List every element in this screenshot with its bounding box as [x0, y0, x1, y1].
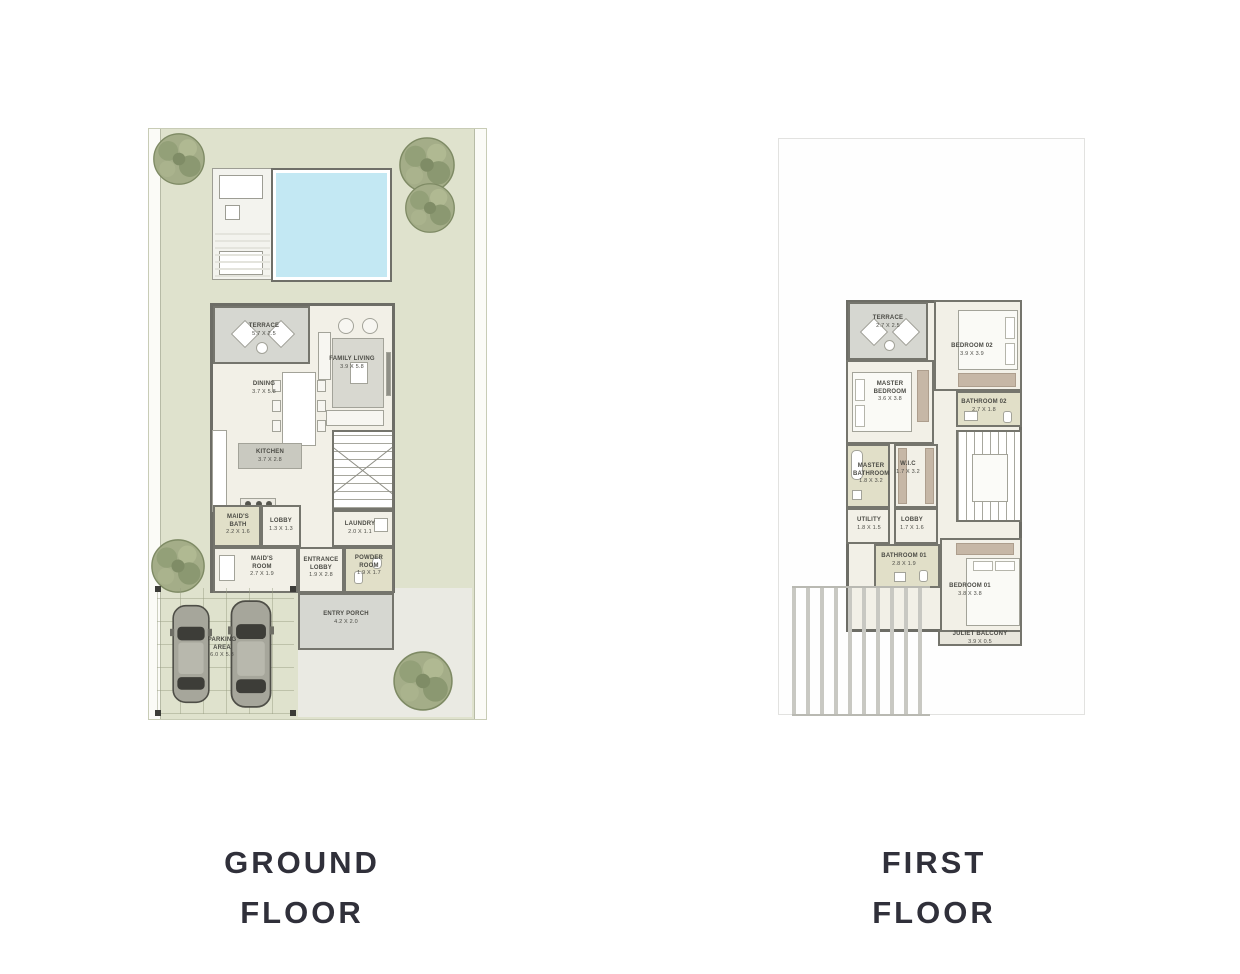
deck-table: [225, 205, 240, 220]
wardrobe: [958, 373, 1016, 387]
room-label-kitchen: KITCHEN 3.7 X 2.8: [250, 449, 290, 463]
armchair: [338, 318, 354, 334]
dining-chair: [317, 380, 326, 392]
bed: [958, 310, 1018, 370]
tv-console: [386, 352, 391, 396]
sink: [852, 490, 862, 500]
tree-icon: [404, 182, 456, 234]
terrace-table: [884, 340, 895, 351]
dining-chair: [317, 400, 326, 412]
parking-post: [155, 586, 161, 592]
room-label-terrace-first: TERRACE 2.7 X 2.5: [866, 315, 910, 329]
dining-table: [282, 372, 316, 446]
room-label-parking: PARKING AREA 6.0 X 5.8: [199, 637, 245, 659]
pillow: [1005, 317, 1015, 339]
pool-deck: [212, 168, 273, 280]
parking-post: [290, 710, 296, 716]
ground-floor-title-line1: GROUND: [224, 845, 380, 881]
closet-shelf: [925, 448, 934, 504]
toilet: [919, 570, 928, 582]
parking-post: [290, 586, 296, 592]
stair-cross: [334, 432, 392, 508]
first-floor-title-line2: FLOOR: [872, 895, 996, 931]
room-label-bathroom-01: BATHROOM 01 2.8 X 1.9: [879, 553, 929, 567]
room-label-family-living: FAMILY LIVING 3.9 X 5.8: [327, 356, 377, 370]
dining-chair: [317, 420, 326, 432]
room-label-terrace-ground: TERRACE 5.7 X 2.5: [242, 323, 286, 337]
room-label-bedroom-01: BEDROOM 01 3.8 X 3.8: [947, 583, 993, 597]
room-label-maids-room: MAID'S ROOM 2.7 X 1.9: [245, 556, 279, 578]
room-label-master-bedroom: MASTER BEDROOM 3.6 X 3.8: [860, 381, 920, 403]
tree-icon: [152, 132, 206, 186]
ground-floor-title-line2: FLOOR: [240, 895, 364, 931]
sun-lounger: [219, 175, 263, 199]
room-label-powder-room: POWDER ROOM 1.9 X 1.7: [346, 555, 392, 577]
floorplan-page: TERRACE 5.7 X 2.5 FAMILY LIVING 3.9 X 5.…: [0, 0, 1240, 974]
pillow: [1005, 343, 1015, 365]
room-label-entrance-lobby: ENTRANCE LOBBY 1.9 X 2.8: [302, 557, 340, 579]
tree-icon: [392, 650, 454, 712]
room-label-juliet-balcony: JULIET BALCONY 3.9 X 0.5: [945, 631, 1015, 645]
swimming-pool: [271, 168, 392, 282]
sofa: [326, 410, 384, 426]
room-label-lobby-ground: LOBBY 1.3 X 1.3: [264, 518, 298, 532]
room-label-bedroom-02: BEDROOM 02 3.9 X 3.9: [949, 343, 995, 357]
pillow: [973, 561, 993, 571]
room-label-maids-bath: MAID'S BATH 2.2 X 1.6: [223, 514, 253, 536]
room-label-utility: UTILITY 1.8 X 1.5: [852, 517, 886, 531]
kitchen-counter: [212, 430, 227, 512]
dining-chair: [272, 400, 281, 412]
room-label-lobby-first: LOBBY 1.7 X 1.6: [895, 517, 929, 531]
room-wic: [894, 444, 938, 508]
stair-landing: [972, 454, 1008, 502]
room-label-master-bathroom: MASTER BATHROOM 1.8 X 3.2: [853, 463, 889, 485]
deck-texture: [215, 233, 270, 277]
room-label-bathroom-02: BATHROOM 02 2.7 X 1.8: [959, 399, 1009, 413]
terrace-table: [256, 342, 268, 354]
pillow: [995, 561, 1015, 571]
parking-post: [155, 710, 161, 716]
first-floor-title-line1: FIRST: [882, 845, 987, 881]
pillow: [855, 405, 865, 427]
room-label-dining: DINING 3.7 X 5.8: [244, 381, 284, 395]
plot-boundary-right: [474, 129, 486, 719]
room-terrace-first: [848, 302, 928, 360]
sink: [894, 572, 906, 582]
closet-shelf: [898, 448, 907, 504]
staircase-ground: [332, 430, 394, 510]
armchair: [362, 318, 378, 334]
staircase-first: [956, 430, 1022, 522]
dining-chair: [272, 420, 281, 432]
maids-bed: [219, 555, 235, 581]
wardrobe: [956, 543, 1014, 555]
room-label-wic: W.I.C 1.7 X 3.2: [891, 461, 925, 475]
room-label-entry-porch: ENTRY PORCH 4.2 X 2.0: [323, 611, 369, 625]
pergola-slats: [792, 586, 930, 716]
room-label-laundry: LAUNDRY 2.0 X 1.1: [340, 521, 380, 535]
